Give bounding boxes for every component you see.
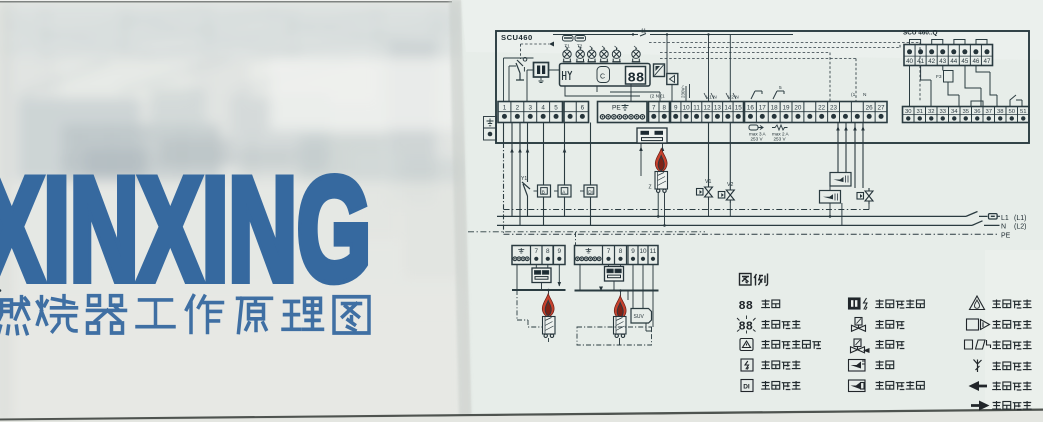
svg-text:8: 8 xyxy=(619,248,623,255)
svg-text:50: 50 xyxy=(1008,109,1015,115)
svg-text:9: 9 xyxy=(631,248,635,255)
svg-text:17: 17 xyxy=(759,104,767,111)
svg-text:230V~: 230V~ xyxy=(681,84,686,98)
svg-text:F3: F3 xyxy=(936,74,942,80)
svg-text:23: 23 xyxy=(830,104,838,111)
svg-text:30: 30 xyxy=(905,109,912,115)
svg-text:6: 6 xyxy=(581,104,585,111)
svg-text:40: 40 xyxy=(906,58,913,65)
svg-text:20: 20 xyxy=(794,104,802,111)
svg-text:12: 12 xyxy=(703,104,711,111)
svg-text:1: 1 xyxy=(503,104,507,111)
svg-text:3: 3 xyxy=(528,104,532,111)
svg-text:Y1: Y1 xyxy=(521,176,527,182)
svg-text:38: 38 xyxy=(997,109,1004,115)
svg-text:26: 26 xyxy=(866,104,874,111)
svg-text:51: 51 xyxy=(1020,109,1027,115)
svg-text:43: 43 xyxy=(939,58,946,65)
svg-text:253 V: 253 V xyxy=(774,137,787,142)
svg-text:31: 31 xyxy=(916,109,923,115)
svg-text:DI: DI xyxy=(588,189,593,194)
svg-text:4: 4 xyxy=(541,104,545,111)
svg-text:11: 11 xyxy=(693,104,700,111)
svg-text:42: 42 xyxy=(928,58,935,65)
svg-text:16: 16 xyxy=(747,104,755,111)
svg-text:(1: (1 xyxy=(851,92,856,98)
svg-text:(L1): (L1) xyxy=(1014,215,1026,222)
svg-text:88: 88 xyxy=(628,71,645,87)
svg-text:(L2): (L2) xyxy=(1014,224,1026,231)
svg-text:L1: L1 xyxy=(1001,215,1009,222)
svg-text:V1 N: V1 N xyxy=(706,95,717,101)
svg-text:B: B xyxy=(542,189,545,194)
svg-text:36: 36 xyxy=(974,109,981,115)
svg-text:V2 N: V2 N xyxy=(728,95,739,101)
svg-text:(2 N (1: (2 N (1 xyxy=(650,94,665,100)
svg-text:7: 7 xyxy=(535,248,539,255)
svg-text:33: 33 xyxy=(939,109,946,115)
svg-text:8: 8 xyxy=(546,248,550,255)
svg-text:SUV: SUV xyxy=(634,314,645,320)
svg-text:5: 5 xyxy=(779,85,782,91)
svg-text:N: N xyxy=(1001,224,1006,231)
svg-text:37: 37 xyxy=(985,109,992,115)
svg-text:DI: DI xyxy=(743,383,750,390)
svg-text:34: 34 xyxy=(951,109,958,115)
svg-text:88: 88 xyxy=(739,299,753,313)
svg-text:253 V: 253 V xyxy=(751,137,764,142)
svg-text:7: 7 xyxy=(652,104,656,111)
svg-text:PE: PE xyxy=(612,104,621,111)
svg-text:19: 19 xyxy=(783,104,791,111)
svg-text:88: 88 xyxy=(739,320,753,334)
svg-text:9: 9 xyxy=(558,248,562,255)
svg-text:5: 5 xyxy=(554,104,558,111)
svg-text:18: 18 xyxy=(771,104,779,111)
svg-text:SCU460: SCU460 xyxy=(501,33,533,42)
svg-text:9: 9 xyxy=(674,104,678,111)
svg-text:PE: PE xyxy=(1001,232,1011,239)
svg-text:Z: Z xyxy=(649,185,652,191)
svg-text:27: 27 xyxy=(878,104,886,111)
svg-text:XINXING: XINXING xyxy=(0,148,371,311)
svg-text:7: 7 xyxy=(607,248,611,255)
svg-text:10: 10 xyxy=(639,248,647,255)
svg-text:45: 45 xyxy=(961,58,968,65)
svg-text:15: 15 xyxy=(735,104,743,111)
svg-text:41: 41 xyxy=(917,58,924,65)
svg-text:10: 10 xyxy=(683,104,691,111)
svg-text:22: 22 xyxy=(818,104,826,111)
svg-text:47: 47 xyxy=(984,58,991,65)
svg-text:SCU 460..Q: SCU 460..Q xyxy=(903,30,937,37)
svg-text:C: C xyxy=(600,74,605,81)
svg-text:13: 13 xyxy=(714,104,722,111)
svg-text:2: 2 xyxy=(516,104,520,111)
svg-text:46: 46 xyxy=(972,58,979,65)
svg-text:N: N xyxy=(863,92,867,98)
svg-text:14: 14 xyxy=(724,104,732,111)
svg-text:11: 11 xyxy=(650,248,657,255)
svg-text:35: 35 xyxy=(962,109,969,115)
svg-text:I: I xyxy=(524,67,526,74)
svg-text:8: 8 xyxy=(662,104,666,111)
svg-text:11: 11 xyxy=(641,29,646,35)
svg-text:32: 32 xyxy=(928,109,935,115)
svg-text:44: 44 xyxy=(950,58,957,65)
